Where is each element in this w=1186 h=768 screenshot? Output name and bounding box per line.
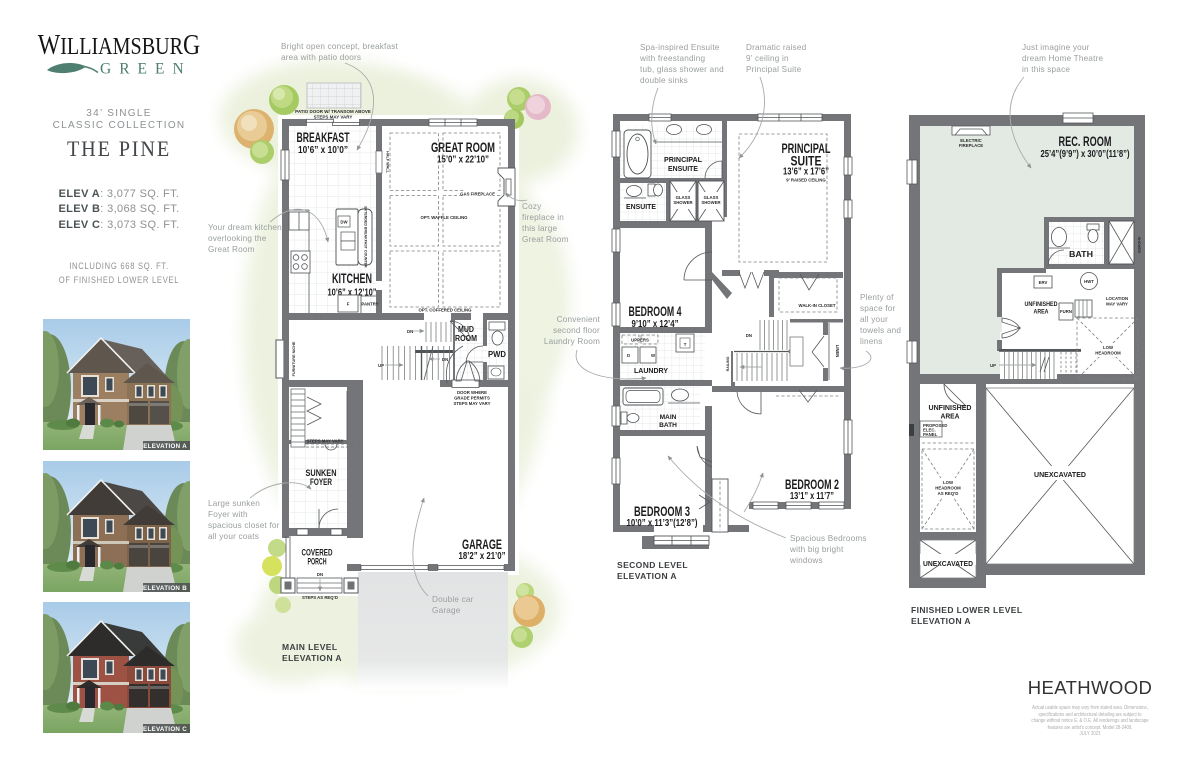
svg-text:15’0” x 22’10”: 15’0” x 22’10”: [437, 155, 489, 166]
svg-text:T: T: [684, 342, 687, 347]
svg-text:REC. ROOM: REC. ROOM: [1059, 134, 1112, 149]
svg-text:9’ RAISED CEILING: 9’ RAISED CEILING: [786, 178, 826, 183]
svg-text:ROOM: ROOM: [455, 333, 477, 343]
svg-text:9’ ceiling in: 9’ ceiling in: [746, 54, 789, 63]
svg-text:BEDROOM 4: BEDROOM 4: [629, 304, 682, 319]
svg-text:Great Room: Great Room: [522, 235, 569, 244]
svg-text:PANEL: PANEL: [923, 432, 938, 437]
svg-text:SHOWER: SHOWER: [701, 200, 721, 205]
svg-text:tub, glass shower and: tub, glass shower and: [640, 65, 724, 74]
svg-text:Double car: Double car: [432, 595, 474, 604]
svg-text:10’0” x 11’3”(12’8”): 10’0” x 11’3”(12’8”): [627, 518, 698, 529]
svg-text:dream Home Theatre: dream Home Theatre: [1022, 54, 1104, 63]
svg-text:Principal Suite: Principal Suite: [746, 65, 802, 74]
svg-text:space for: space for: [860, 304, 896, 313]
svg-text:BATH: BATH: [659, 422, 677, 429]
svg-text:ERV: ERV: [1039, 280, 1048, 285]
svg-text:AS REQ’D: AS REQ’D: [938, 491, 959, 496]
svg-text:UNEXCAVATED: UNEXCAVATED: [1034, 470, 1087, 479]
svg-text:FURNITURE NICHE: FURNITURE NICHE: [292, 341, 296, 376]
svg-text:spacious closet for: spacious closet for: [208, 521, 280, 530]
svg-text:Your dream kitchen: Your dream kitchen: [208, 223, 282, 232]
svg-text:GARAGE: GARAGE: [462, 537, 502, 552]
svg-text:UP: UP: [990, 363, 996, 368]
svg-text:MAIN LEVEL: MAIN LEVEL: [282, 642, 337, 652]
svg-text:this large: this large: [522, 224, 557, 233]
svg-text:Foyer with: Foyer with: [208, 510, 248, 519]
svg-text:LINEN: LINEN: [835, 345, 840, 358]
svg-text:UP: UP: [378, 363, 384, 368]
svg-text:LOW: LOW: [943, 480, 954, 485]
svg-text:HALF WALL: HALF WALL: [386, 151, 390, 174]
svg-text:25’4”(9’9”) x 30’0”(11’8”): 25’4”(9’9”) x 30’0”(11’8”): [1041, 149, 1130, 160]
svg-text:DOOR WHERE: DOOR WHERE: [457, 390, 487, 395]
svg-text:DN: DN: [317, 572, 323, 577]
svg-text:STEPS MAY VARY: STEPS MAY VARY: [314, 115, 353, 120]
svg-text:fireplace in: fireplace in: [522, 213, 564, 222]
svg-text:SECOND LEVEL: SECOND LEVEL: [617, 560, 688, 570]
svg-text:with freestanding: with freestanding: [639, 54, 706, 63]
svg-text:ELEVATION A: ELEVATION A: [617, 571, 677, 581]
svg-text:STEPS MAY VARY: STEPS MAY VARY: [453, 401, 490, 406]
svg-text:F: F: [347, 302, 350, 307]
svg-text:FINISHED LOWER LEVEL: FINISHED LOWER LEVEL: [911, 605, 1022, 615]
svg-text:BATH: BATH: [1069, 249, 1093, 259]
svg-text:all your coats: all your coats: [208, 532, 259, 541]
svg-text:AREA: AREA: [1034, 309, 1049, 316]
svg-text:PATIO DOOR W/ TRANSOM ABOVE: PATIO DOOR W/ TRANSOM ABOVE: [295, 109, 371, 114]
svg-text:D: D: [627, 353, 630, 358]
svg-text:PRINCIPAL: PRINCIPAL: [664, 155, 702, 164]
svg-text:MAY VARY: MAY VARY: [1106, 302, 1128, 307]
svg-text:Laundry Room: Laundry Room: [544, 337, 600, 346]
svg-text:Dramatic raised: Dramatic raised: [746, 43, 807, 52]
svg-text:Convenient: Convenient: [557, 315, 601, 324]
svg-text:ENSUITE: ENSUITE: [626, 202, 656, 211]
svg-text:RAILING: RAILING: [726, 356, 730, 371]
svg-text:Spacious Bedrooms: Spacious Bedrooms: [790, 534, 867, 543]
svg-text:SHOWER: SHOWER: [1137, 237, 1141, 254]
svg-text:BREAKFAST: BREAKFAST: [297, 130, 350, 145]
svg-text:GAS FIREPLACE: GAS FIREPLACE: [460, 192, 495, 197]
svg-text:DN: DN: [746, 333, 752, 338]
svg-text:Great Room: Great Room: [208, 245, 255, 254]
svg-text:MAIN: MAIN: [660, 414, 677, 421]
svg-text:double sinks: double sinks: [640, 76, 688, 85]
svg-text:WALK-IN CLOSET: WALK-IN CLOSET: [799, 303, 836, 308]
svg-text:GRADE PERMITS: GRADE PERMITS: [454, 396, 490, 401]
svg-text:Plenty of: Plenty of: [860, 293, 894, 302]
svg-text:AREA: AREA: [941, 412, 961, 421]
svg-text:13’6” x 17’6”: 13’6” x 17’6”: [783, 167, 829, 178]
svg-text:STEPS MAY VARY: STEPS MAY VARY: [306, 439, 343, 444]
svg-text:OPT. COFFERED CEILING: OPT. COFFERED CEILING: [419, 308, 473, 313]
svg-text:13’1” x 11’7”: 13’1” x 11’7”: [790, 491, 834, 502]
svg-text:Bright open concept, breakfast: Bright open concept, breakfast: [281, 42, 399, 51]
svg-text:in this space: in this space: [1022, 65, 1070, 74]
svg-text:DN: DN: [442, 357, 448, 362]
svg-text:second floor: second floor: [553, 326, 600, 335]
svg-text:UNEXCAVATED: UNEXCAVATED: [923, 561, 973, 568]
svg-text:area with patio doors: area with patio doors: [281, 53, 361, 62]
svg-text:OPT. WAFFLE CEILING: OPT. WAFFLE CEILING: [420, 215, 468, 220]
svg-text:ENSUITE: ENSUITE: [668, 164, 698, 173]
svg-text:towels and: towels and: [860, 326, 901, 335]
svg-text:DW: DW: [340, 220, 348, 225]
svg-text:all your: all your: [860, 315, 888, 324]
svg-text:Spa-inspired Ensuite: Spa-inspired Ensuite: [640, 43, 720, 52]
svg-text:HEADROOM: HEADROOM: [935, 486, 961, 491]
svg-text:10’6” x 10’0”: 10’6” x 10’0”: [298, 145, 348, 156]
svg-text:linens: linens: [860, 337, 883, 346]
svg-text:LOW: LOW: [1103, 345, 1114, 350]
svg-text:BEDROOM 2: BEDROOM 2: [785, 477, 839, 492]
svg-text:FIREPLACE: FIREPLACE: [959, 143, 983, 148]
svg-text:EXTENDED BREAKFAST COUNTER: EXTENDED BREAKFAST COUNTER: [364, 206, 368, 268]
svg-text:with big bright: with big bright: [789, 545, 844, 554]
svg-text:UPPERS: UPPERS: [631, 338, 649, 343]
svg-text:UNFINISHED: UNFINISHED: [1025, 301, 1058, 308]
svg-text:PANTRY: PANTRY: [361, 302, 378, 307]
svg-text:Cozy: Cozy: [522, 202, 542, 211]
svg-text:GREAT ROOM: GREAT ROOM: [431, 140, 495, 155]
svg-text:overlooking the: overlooking the: [208, 234, 267, 243]
svg-text:LAUNDRY: LAUNDRY: [634, 366, 668, 375]
svg-text:HEADROOM: HEADROOM: [1095, 351, 1121, 356]
svg-text:KITCHEN: KITCHEN: [332, 271, 372, 286]
svg-text:ELEVATION A: ELEVATION A: [911, 616, 971, 626]
svg-text:Garage: Garage: [432, 606, 461, 615]
svg-text:FOYER: FOYER: [310, 477, 332, 487]
svg-text:HWT: HWT: [1084, 279, 1094, 284]
svg-text:ELEVATION A: ELEVATION A: [282, 653, 342, 663]
svg-text:SHOWER: SHOWER: [673, 200, 693, 205]
svg-text:windows: windows: [789, 556, 823, 565]
svg-text:9’10” x 12’4”: 9’10” x 12’4”: [632, 319, 679, 330]
svg-text:18’2” x 21’0”: 18’2” x 21’0”: [459, 551, 506, 562]
svg-text:DN: DN: [407, 329, 413, 334]
svg-text:BEDROOM 3: BEDROOM 3: [634, 504, 690, 519]
svg-text:Just imagine your: Just imagine your: [1022, 43, 1090, 52]
svg-text:LOCATION: LOCATION: [1106, 296, 1128, 301]
svg-text:FURN: FURN: [1060, 309, 1072, 314]
svg-text:STEPS AS REQ’D: STEPS AS REQ’D: [302, 595, 338, 600]
svg-text:PWD: PWD: [488, 349, 506, 359]
svg-text:Large sunken: Large sunken: [208, 499, 260, 508]
svg-text:PORCH: PORCH: [308, 557, 327, 567]
